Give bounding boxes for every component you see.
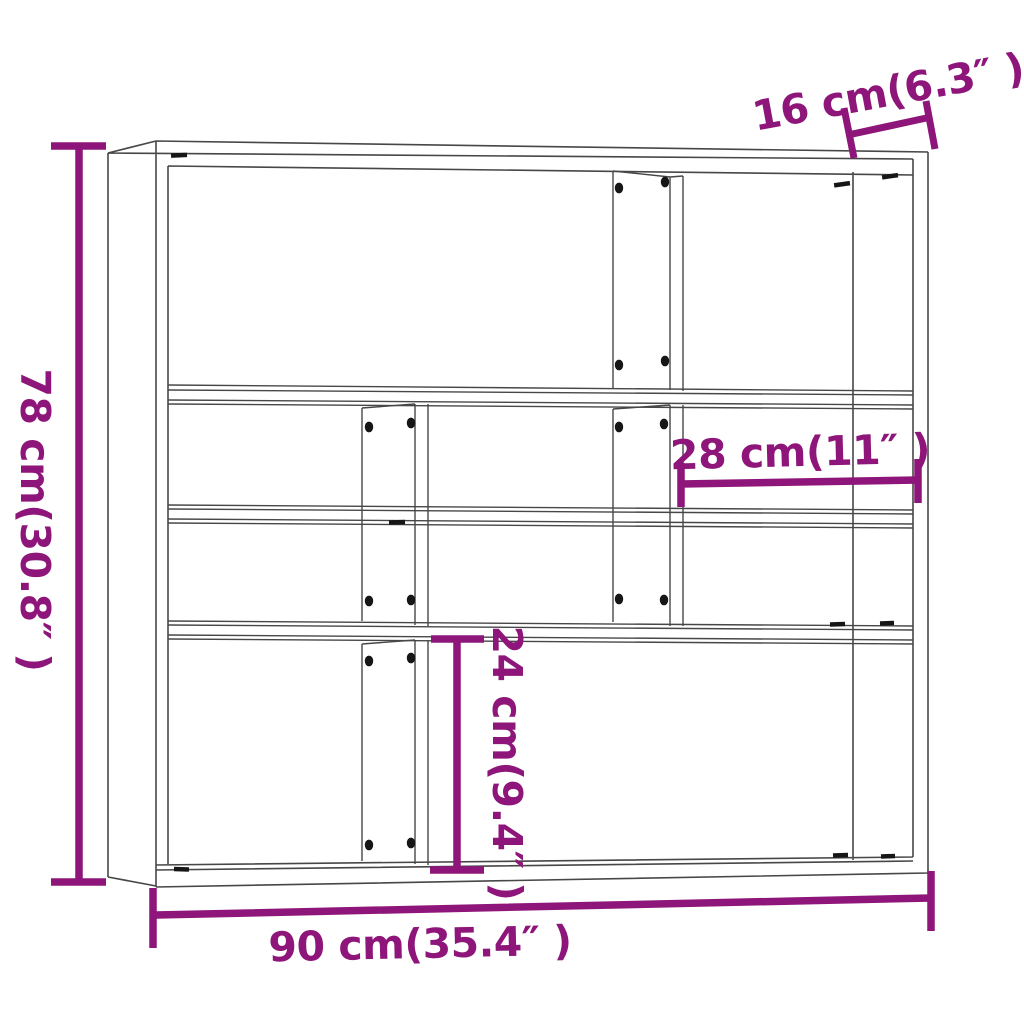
- dimension-inner-height: 24 cm(9.4″ ): [430, 625, 531, 900]
- inner-height-dimension-line: [430, 639, 484, 870]
- dimension-diagram-page: 78 cm(30.8″ ) 16 cm(6.3″ ) 28 cm(11″ ) 2…: [0, 0, 1024, 1024]
- dimension-height: 78 cm(30.8″ ): [11, 146, 106, 882]
- inner-width-dimension-label: 28 cm(11″ ): [669, 425, 930, 480]
- wall-shelf-dimension-diagram: 78 cm(30.8″ ) 16 cm(6.3″ ) 28 cm(11″ ) 2…: [0, 0, 1024, 1024]
- pin-dashes: [171, 153, 898, 872]
- hardware-marks: [171, 153, 898, 872]
- dimension-inner-width: 28 cm(11″ ): [669, 425, 930, 507]
- dimension-width: 90 cm(35.4″ ): [153, 871, 931, 971]
- dimension-depth: 16 cm(6.3″ ): [749, 43, 1024, 158]
- inner-height-dimension-label: 24 cm(9.4″ ): [483, 625, 531, 900]
- height-dimension-label: 78 cm(30.8″ ): [11, 368, 59, 671]
- width-dimension-label: 90 cm(35.4″ ): [268, 917, 572, 972]
- shelf-lines: [168, 385, 913, 644]
